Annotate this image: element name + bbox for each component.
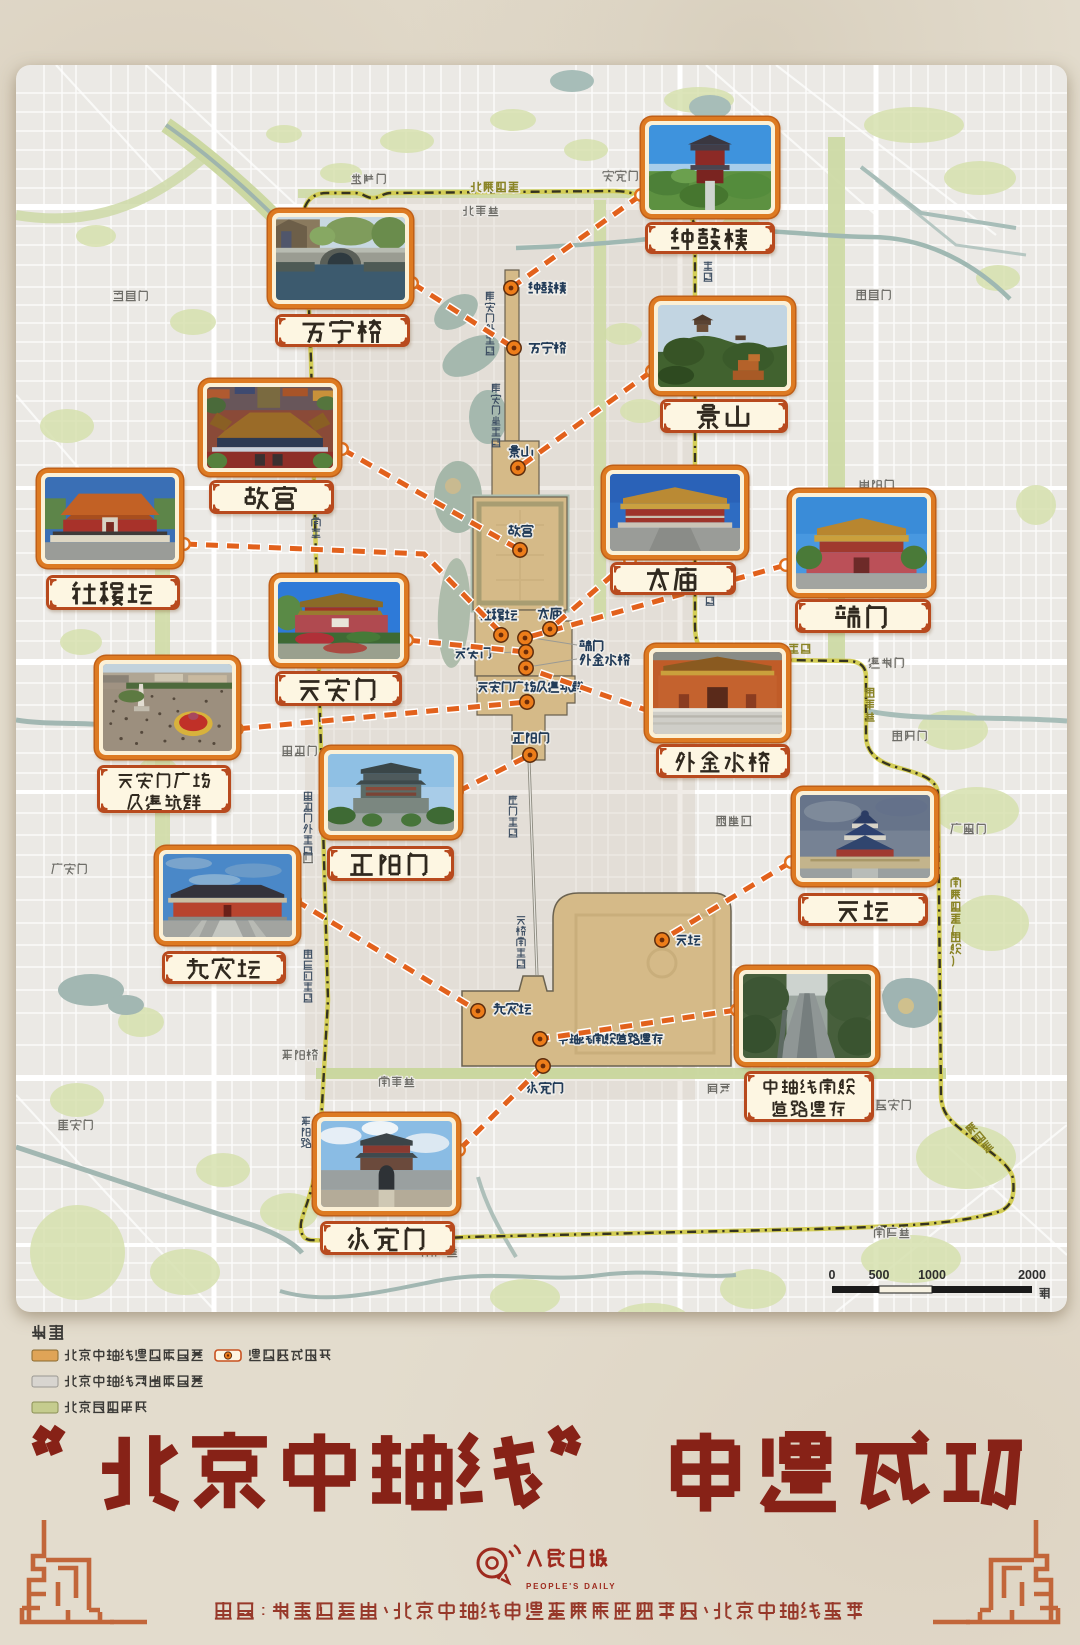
svg-text:1000: 1000 <box>918 1268 946 1282</box>
svg-text:500: 500 <box>869 1268 890 1282</box>
svg-text:PEOPLE'S DAILY: PEOPLE'S DAILY <box>526 1582 616 1591</box>
svg-text:0: 0 <box>829 1268 836 1282</box>
svg-text:2000: 2000 <box>1018 1268 1046 1282</box>
